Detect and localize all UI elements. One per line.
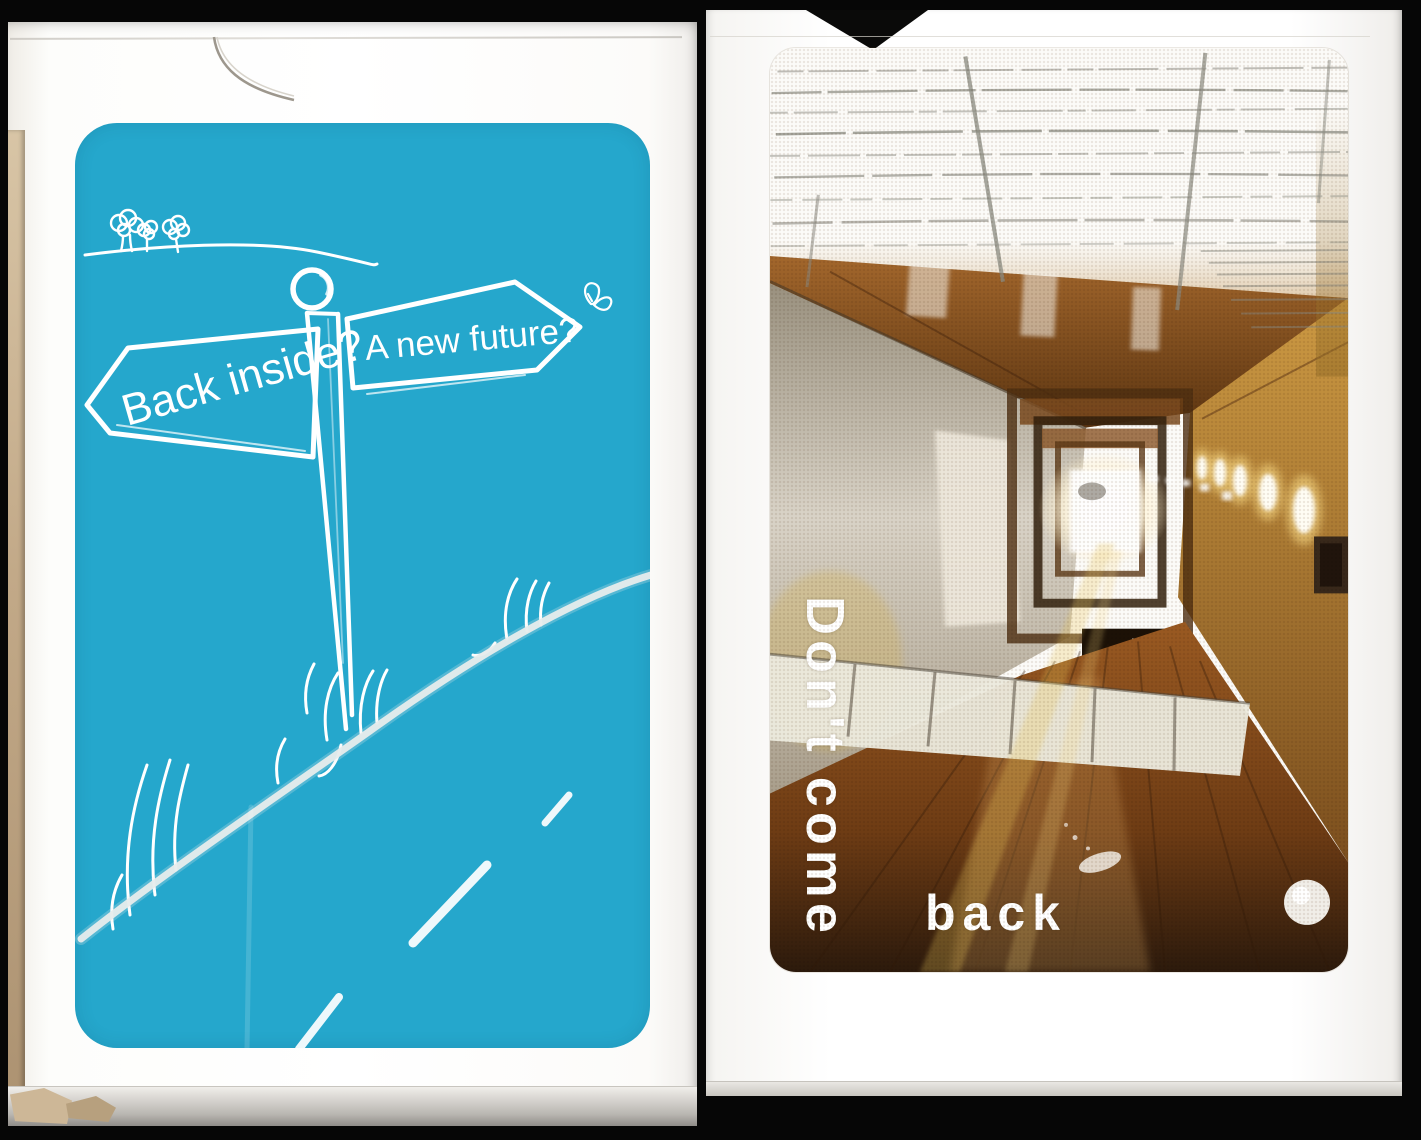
signpost: Back inside? A new future? <box>87 270 580 729</box>
photo-caption-vertical: Don't come <box>794 596 856 968</box>
trees-icon <box>111 210 189 252</box>
scanned-card-boxes: Back inside? A new future? <box>0 0 1421 1140</box>
signpost-ball <box>293 270 331 308</box>
lid-notch-shadow <box>806 10 928 50</box>
picture-frame <box>1314 536 1348 593</box>
butterfly-icon <box>585 283 611 310</box>
corridor-photo: Don't come back <box>770 48 1348 972</box>
card-back-design: Back inside? A new future? <box>75 123 650 1048</box>
lid-seam <box>10 36 682 40</box>
horizon-line <box>85 245 377 265</box>
road-line <box>81 575 650 939</box>
scan-crease <box>247 807 251 1048</box>
lid-seam <box>710 36 1370 37</box>
right-sign: A new future? <box>347 282 580 394</box>
right-deck-box: Don't come back <box>706 10 1402 1095</box>
left-sign: Back inside? <box>87 320 370 457</box>
thumb-notch <box>206 34 302 112</box>
road-dashes <box>299 795 569 1048</box>
left-deck-box: Back inside? A new future? <box>8 22 697 1125</box>
box-side-edge <box>8 130 25 1118</box>
box-bottom-edge <box>706 1081 1402 1096</box>
photo-caption-horizontal: back <box>925 884 1067 942</box>
